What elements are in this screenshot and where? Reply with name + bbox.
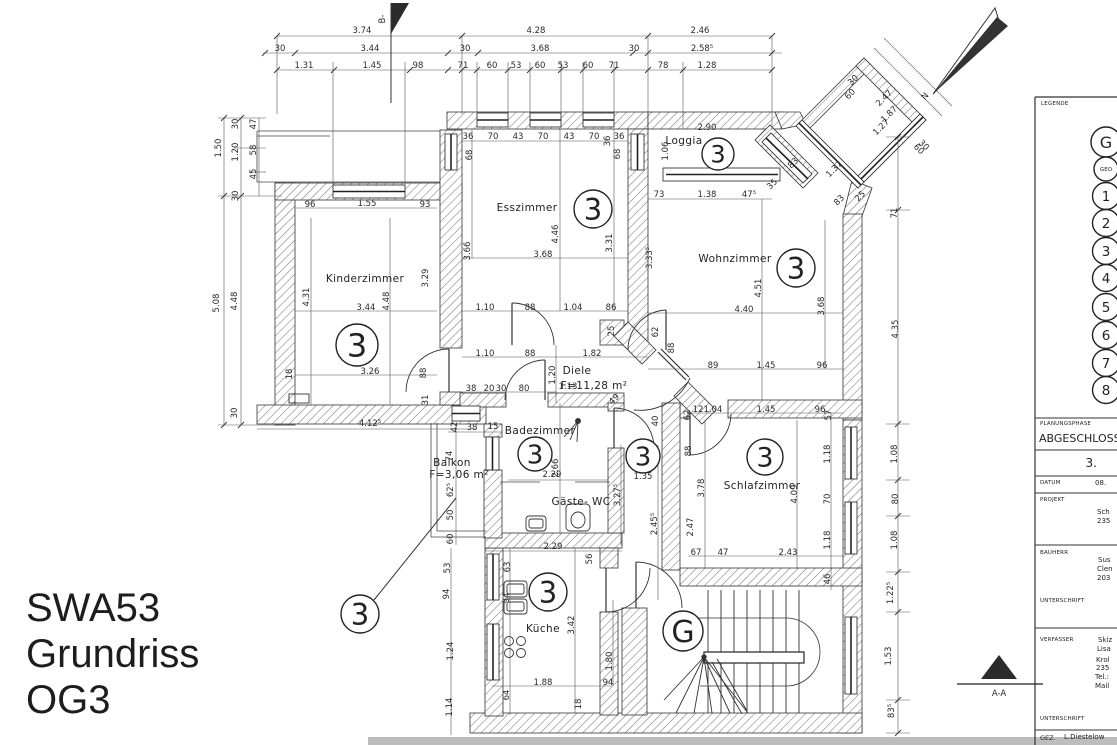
dimension-label: 53 [511,61,522,71]
dimension-label: 18 [285,369,295,380]
dimension-label: 30 [629,44,640,54]
dimension-label: 3.31 [605,234,615,253]
dimension-label: 4.40 [735,305,754,315]
dimension-label: 88 [667,343,677,354]
scan-edge [368,737,1117,745]
gez-value: L.Diestelow [1064,733,1104,742]
dimension-label: 38 [466,384,477,394]
dimension-label: 47 [249,119,259,130]
dimension-label: 1.45 [363,61,382,71]
dimension-label: 2.29 [544,542,563,552]
room-label: F=3,06 m² [429,469,489,481]
dimension-label: 12 [693,405,704,415]
dimension-label: 46 [823,574,833,585]
dimension-label: 83⁵ [887,704,897,718]
dimension-label: 96 [305,200,316,210]
legend-symbol-text: G [1100,133,1112,152]
dimension-label: 1.20 [231,143,241,162]
dimension-label: 1.18 [823,531,833,550]
dimension-label: 20 [484,384,495,394]
dimension-label: 43 [564,132,575,142]
legend-symbol-text: 1 [1102,189,1111,205]
dimension-label: 45 [249,169,259,180]
dimension-label: 3.44 [361,44,380,54]
gez-label: GEZ. [1040,734,1056,742]
dimension-label: 2.29 [543,470,562,480]
dimension-label: A-A [992,689,1007,699]
dimension-label: 1.20 [548,366,558,385]
dimension-label: 1.08 [890,531,900,550]
title-line-2: Grundriss [26,631,199,677]
dimension-label: 4.12⁵ [359,419,381,429]
legend-symbol-text: 4 [1102,271,1111,287]
datum-value: 08. [1095,479,1106,488]
dimension-label: 3.74 [353,26,372,36]
verfasser-line-6: Mail [1095,682,1109,691]
dimension-label: 1.82 [583,349,602,359]
dimension-label: 40 [651,416,661,427]
dimension-label: 42 [450,422,460,433]
dimension-label: 94 [603,678,614,688]
projekt-line-1: Sch [1097,508,1110,517]
dimension-label: 4.35 [891,320,901,339]
room-label: Schlafzimmer [724,480,801,492]
dimension-label: 1.28 [698,61,717,71]
dimension-label: 5.08 [212,294,222,313]
drawing-title: SWA53 Grundriss OG3 [26,585,199,723]
room-label: Gäste- WC [551,496,610,508]
planungsphase-label: PLANUNGSPHASE [1040,421,1091,427]
legend-symbol-text: 6 [1102,328,1111,344]
verfasser-line-1: Skiz [1098,636,1112,645]
legend-symbol-text: 5 [1102,300,1111,316]
dimension-label: 1.22⁵ [886,582,896,604]
dimension-label: 3.33⁵ [645,247,655,269]
dimension-label: 60 [446,534,456,545]
dimension-label: 80 [891,494,901,505]
dimension-label: 88 [684,446,694,457]
dimension-label: 3.29 [421,269,431,288]
bauherr-line-1: Sus [1098,556,1111,565]
dimension-label: 3.78 [697,479,707,498]
dimension-label: 67 [691,548,702,558]
dimension-label: 78 [658,61,669,71]
dimension-label: 36 [603,136,613,147]
dimension-label: 56 [585,554,595,565]
dimension-label: 94 [502,593,512,604]
dimension-label: 70 [823,494,833,505]
dimension-label: 3.27⁵ [613,484,623,506]
dimension-label: 60 [583,61,594,71]
dimension-label: 88 [419,368,429,379]
dimension-label: 3.26 [361,367,380,377]
dimension-label: 4.28 [527,26,546,36]
verfasser-line-4: 235 [1096,664,1109,673]
dimension-label: 62 [651,327,661,338]
dimension-label: 80 [519,384,530,394]
dimension-label: 93 [420,200,431,210]
dimension-label: 1.45 [757,405,776,415]
dimension-label: 60 [487,61,498,71]
dimension-label: 62 [683,410,693,421]
dimension-label: 71 [890,208,900,219]
dimension-label: 4.48 [382,292,392,311]
dimension-label: 73 [654,190,665,200]
dimension-label: B- [378,15,388,24]
dimension-label: 1.04 [564,303,583,313]
unterschrift-label-1: UNTERSCHRIFT [1040,598,1085,604]
projekt-label: PROJEKT [1040,497,1065,503]
dimension-label: 4.46 [551,225,561,244]
dimension-label: 88 [525,349,536,359]
room-marker-number: G [671,615,694,650]
dimension-label: 47 [718,548,729,558]
dimension-label: 71 [458,61,469,71]
dimension-label: 3.68 [531,44,550,54]
dimension-label: 1.50 [214,139,224,158]
dimension-label: 2.46 [691,26,710,36]
phase-number: 3. [1035,456,1097,470]
room-label: Diele [563,365,592,377]
dimension-label: 3.68 [817,297,827,316]
dimension-label: 68 [465,150,475,161]
room-label: Kinderzimmer [326,273,405,285]
dimension-label: 30 [231,191,241,202]
dimension-label: 1.80 [605,652,615,671]
dimension-label: 30 [496,384,507,394]
verfasser-line-5: Tel.: [1095,673,1109,682]
dimension-label: 18 [574,699,584,710]
dimension-label: 25 [607,326,617,337]
floorplan-page: 3.744.282.46303.44303.68302.58⁵1.311.459… [0,0,1117,745]
dimension-label: 4.31 [302,288,312,307]
dimension-label: 30 [230,408,240,419]
dimension-label: 1.55 [358,199,377,209]
dimension-label: 1.38 [698,190,717,200]
unterschrift-label-2: UNTERSCHRIFT [1040,716,1085,722]
dimension-label: 1.45 [757,361,776,371]
dimension-label: 50 [446,510,456,521]
dimension-label: 64 [502,690,512,701]
room-label: Balkon [433,457,471,469]
room-marker-number: 3 [539,575,557,609]
bauherr-line-3: 203 [1097,574,1110,583]
dimension-label: 3.44 [357,303,376,313]
title-line-3: OG3 [26,677,199,723]
dimension-label: 31 [421,395,431,406]
dimension-label: 88 [525,303,536,313]
room-marker-number: 3 [635,442,652,472]
dimension-label: 60 [535,61,546,71]
legend-symbol-text: 8 [1102,383,1111,399]
legend-symbol-text: 7 [1102,356,1111,372]
dimension-label: 30 [275,44,286,54]
room-marker-number: 3 [787,251,805,285]
legend-symbol-text: 2 [1102,216,1111,232]
dimension-label: 47⁵ [742,190,756,200]
dimension-label: 3.66 [463,242,473,261]
planungsphase-value: ABGESCHLOSS [1039,432,1117,445]
dimension-label: 30 [231,119,241,130]
room-label: Küche [526,623,560,635]
dimension-label: 1.88 [534,678,553,688]
dimension-label: 70 [589,132,600,142]
room-marker-number: 3 [584,192,602,226]
dimension-label: 53 [443,563,453,574]
verfasser-label: VERFASSER [1040,637,1074,643]
dimension-label: 2.43 [779,548,798,558]
dimension-label: 36 [463,132,474,142]
bauherr-label: BAUHERR [1040,550,1068,556]
dimension-label: 3.42 [567,616,577,635]
dimension-label: 30 [460,44,471,54]
dimension-label: 43 [513,132,524,142]
dimension-label: 4.51 [754,279,764,298]
dimension-label: 89 [708,361,719,371]
dimension-label: 2.90 [698,123,717,133]
room-label: Badezimmer [505,425,576,437]
dimension-label: 4.48 [230,292,240,311]
dimension-label: 1.08 [890,445,900,464]
dimension-label: 1.24 [446,642,456,661]
dimension-label: 53 [558,61,569,71]
dimension-label: 3.68 [534,250,553,260]
dimension-label: 62⁵ [446,483,456,497]
title-line-1: SWA53 [26,585,199,631]
room-marker-number: 3 [756,443,773,474]
dimension-label: 2.45⁵ [650,513,660,535]
datum-label: DATUM [1040,480,1061,486]
dimension-label: 1.14 [445,698,455,717]
dimension-label: 86 [606,303,617,313]
legend-title: LEGENDE [1041,101,1069,107]
dimension-label: 15 [488,422,499,432]
dimension-label: 57 [824,410,834,421]
dimension-label: 1.04 [704,405,723,415]
dimension-label: 94 [442,589,452,600]
dimension-label: 1.18 [823,445,833,464]
dimension-label: 71 [609,61,620,71]
room-label: Esszimmer [497,202,558,214]
room-label: Loggia [665,135,702,147]
dimension-label: 63 [503,562,513,573]
dimension-label: 1.53 [884,647,894,666]
dimension-label: 1.10 [476,349,495,359]
room-marker-number: 3 [351,597,369,631]
legend-symbol-text: GEO [1100,167,1113,173]
dimension-label: 2.58⁵ [691,44,713,54]
projekt-line-2: 235 [1097,517,1110,526]
dimension-label: 2.47 [686,518,696,537]
dimension-label: 70 [538,132,549,142]
room-marker-number: 3 [527,440,544,470]
room-label: Wohnzimmer [698,253,771,265]
verfasser-line-2: Lisa [1097,645,1111,654]
room-marker-number: 3 [710,141,725,169]
legend-symbol-text: 3 [1102,244,1111,260]
dimension-label: 98 [413,61,424,71]
dimension-label: 70 [488,132,499,142]
dimension-label: 96 [817,361,828,371]
room-label: F=11,28 m² [561,380,628,392]
dimension-label: 58 [249,145,259,156]
dimension-label: 1.10 [476,303,495,313]
bauherr-line-2: Clen [1097,565,1113,574]
dimension-label: 1.31 [295,61,314,71]
dimension-label: 36 [614,132,625,142]
dimension-label: 68 [613,149,623,160]
dimension-label: 38 [467,423,478,433]
room-marker-number: 3 [347,327,367,365]
